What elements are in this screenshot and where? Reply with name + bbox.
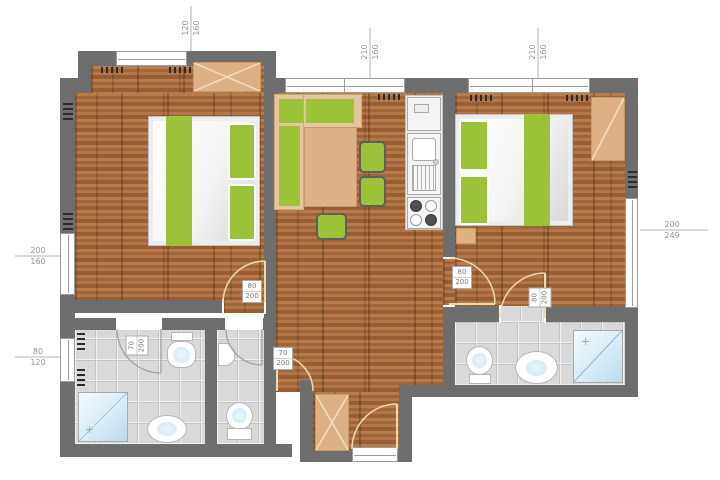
toilet-water bbox=[472, 353, 487, 368]
dimension-width: 210 bbox=[360, 44, 369, 59]
wardrobe-icon bbox=[315, 394, 349, 451]
kitchen-cabinet bbox=[407, 97, 441, 131]
wall bbox=[264, 51, 276, 93]
burner-icon bbox=[425, 214, 437, 226]
corner-sink-icon bbox=[218, 343, 235, 366]
chair-icon bbox=[316, 213, 347, 240]
burner-icon bbox=[410, 200, 422, 212]
faucet-icon bbox=[433, 159, 439, 165]
door-size-label-bathroom2: 80 200 bbox=[529, 288, 552, 308]
window-mullion bbox=[344, 79, 345, 92]
dimension-label-bedroom1-top-window: 120 160 bbox=[181, 11, 201, 45]
window-bedroom1-top bbox=[116, 51, 187, 66]
door-size-label-bathroom1: 70 200 bbox=[126, 336, 149, 356]
bed-runner bbox=[166, 116, 192, 246]
wall bbox=[590, 78, 638, 93]
dimension-width: 200 bbox=[30, 246, 45, 255]
radiator-icon bbox=[101, 67, 125, 73]
shower-icon: + bbox=[573, 330, 623, 383]
drain-icon: + bbox=[85, 425, 94, 435]
dimension-height: 160 bbox=[371, 44, 380, 59]
dimension-height: 160 bbox=[192, 20, 201, 35]
wall bbox=[545, 306, 638, 322]
pillow-icon bbox=[459, 120, 489, 171]
wardrobe-icon bbox=[591, 97, 625, 161]
radiator-icon bbox=[77, 333, 85, 350]
radiator-icon bbox=[63, 100, 73, 120]
window-living bbox=[285, 78, 405, 93]
dimension-label-bedroom2-top-window: 210 160 bbox=[528, 35, 548, 69]
dimension-width: 120 bbox=[181, 20, 190, 35]
toilet-water bbox=[232, 408, 247, 423]
door-width: 80 bbox=[531, 289, 541, 307]
toilet-tank bbox=[227, 428, 252, 440]
door-width: 70 bbox=[128, 337, 138, 355]
wardrobe-icon bbox=[193, 62, 261, 92]
bed-runner bbox=[524, 114, 550, 226]
wall bbox=[262, 318, 276, 330]
drain-icon: + bbox=[581, 337, 590, 347]
cabinet-detail bbox=[414, 104, 429, 113]
door-height: 200 bbox=[138, 337, 147, 355]
toilet-icon bbox=[171, 332, 193, 341]
wall bbox=[60, 300, 223, 313]
radiator-icon bbox=[566, 95, 589, 101]
door-height: 200 bbox=[243, 292, 261, 301]
chair-icon bbox=[359, 176, 386, 207]
door-size-label-hall: 70 200 bbox=[273, 347, 293, 370]
wall bbox=[443, 322, 455, 397]
window-bedroom2-side bbox=[625, 198, 638, 308]
wall bbox=[78, 66, 91, 93]
window-bedroom2-top bbox=[468, 78, 590, 93]
door-width: 80 bbox=[453, 268, 471, 278]
toilet-tank bbox=[469, 374, 491, 384]
dimension-label-bathroom1-window: 80 120 bbox=[21, 347, 55, 367]
pillow-icon bbox=[228, 184, 256, 241]
door-height: 200 bbox=[453, 278, 471, 287]
radiator-icon bbox=[378, 94, 402, 100]
entrance-threshold bbox=[352, 447, 398, 462]
chair-icon bbox=[359, 141, 386, 173]
dimension-height: 160 bbox=[30, 257, 45, 266]
door-width: 80 bbox=[243, 282, 261, 292]
dimension-height: 249 bbox=[664, 231, 679, 240]
wall bbox=[405, 78, 468, 93]
wall bbox=[399, 390, 412, 462]
nightstand-icon bbox=[456, 228, 476, 244]
wall bbox=[60, 444, 292, 457]
wall bbox=[205, 318, 217, 444]
radiator-icon bbox=[169, 67, 193, 73]
window-bathroom1-side bbox=[60, 338, 75, 382]
wall bbox=[399, 385, 638, 397]
radiator-icon bbox=[63, 210, 73, 230]
pillow-icon bbox=[228, 123, 256, 180]
dining-table-icon bbox=[304, 127, 357, 207]
wall bbox=[276, 78, 285, 93]
dimension-width: 210 bbox=[528, 44, 537, 59]
washbasin-water bbox=[526, 360, 547, 376]
sink-bowl bbox=[412, 138, 436, 161]
pillow-icon bbox=[459, 175, 489, 225]
door-size-label-bedroom1: 80 200 bbox=[242, 280, 262, 303]
dimension-label-living-window: 210 160 bbox=[360, 35, 380, 69]
dimension-height: 160 bbox=[539, 44, 548, 59]
radiator-icon bbox=[628, 168, 637, 188]
floor-bathroom2-door-gap bbox=[500, 306, 545, 322]
wall bbox=[60, 78, 78, 93]
burner-icon bbox=[425, 200, 437, 212]
toilet-water bbox=[173, 347, 190, 363]
door-height: 200 bbox=[274, 359, 292, 368]
dimension-height: 120 bbox=[30, 358, 45, 367]
door-width: 70 bbox=[274, 349, 292, 359]
shower-icon: + bbox=[78, 392, 128, 442]
radiator-icon bbox=[470, 95, 494, 101]
sink-drainer bbox=[412, 165, 436, 191]
burner-icon bbox=[410, 214, 422, 226]
dimension-width: 80 bbox=[33, 347, 43, 356]
wall bbox=[443, 306, 500, 322]
sofa-cushion bbox=[279, 99, 303, 123]
door-size-label-bedroom2: 80 200 bbox=[452, 266, 472, 289]
wall bbox=[443, 93, 455, 258]
dimension-label-bedroom2-side-window: 200 249 bbox=[655, 220, 689, 240]
sofa-cushion bbox=[306, 99, 354, 123]
door-height: 200 bbox=[541, 289, 550, 307]
wall bbox=[78, 51, 118, 66]
window-mullion bbox=[532, 79, 533, 92]
radiator-icon bbox=[77, 369, 85, 386]
dimension-width: 200 bbox=[664, 220, 679, 229]
wall bbox=[60, 318, 117, 330]
window-bedroom1-side bbox=[60, 233, 75, 295]
washbasin-water bbox=[157, 422, 177, 436]
floor-plan: + + bbox=[0, 0, 720, 480]
sofa-cushion bbox=[279, 126, 300, 206]
dimension-label-bedroom1-side-window: 200 160 bbox=[21, 246, 55, 266]
